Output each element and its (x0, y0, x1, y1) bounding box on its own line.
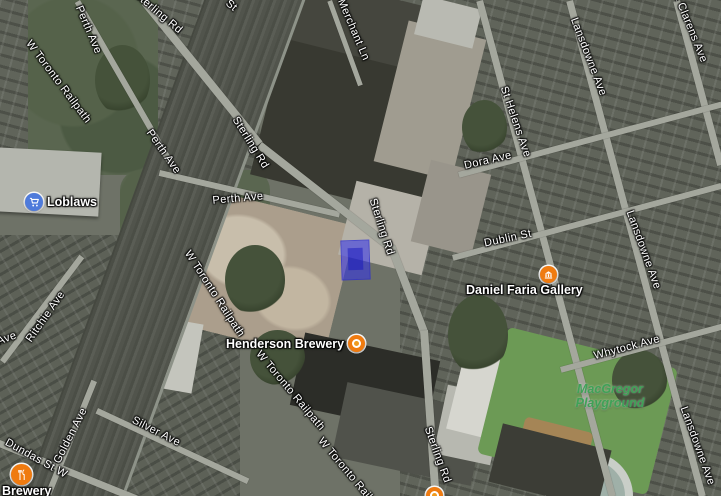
poi-macgregor-playground-line2: Playground (565, 396, 655, 410)
poi-loblaws[interactable]: Loblaws (25, 193, 97, 211)
art-gallery-icon (540, 266, 557, 283)
trees-blob-2 (225, 245, 285, 315)
highlighted-parcel[interactable] (341, 241, 369, 280)
poi-daniel-faria-gallery-label: Daniel Faria Gallery (466, 283, 583, 297)
poi-henderson-brewery-label: Henderson Brewery (226, 337, 344, 351)
poi-brewery-partial-label: Brewery (2, 484, 51, 496)
poi-daniel-faria-gallery[interactable]: Daniel Faria Gallery (466, 266, 572, 298)
trees-blob-5 (462, 100, 507, 155)
trees-blob-4 (448, 295, 508, 375)
parcel-building-shade (348, 248, 364, 271)
poi-dot-icon (348, 335, 365, 352)
shopping-cart-icon (25, 193, 43, 211)
restaurant-icon (11, 464, 32, 485)
poi-brewery-partial[interactable]: Brewery (2, 464, 62, 496)
poi-macgregor-playground[interactable]: MacGregor Playground (565, 382, 655, 410)
poi-macgregor-playground-line1: MacGregor (565, 382, 655, 396)
poi-henderson-brewery[interactable]: Henderson Brewery (226, 335, 365, 352)
poi-loblaws-label: Loblaws (47, 195, 97, 209)
satellite-map[interactable]: Perth Ave Sterling Rd W Toronto Railpath… (0, 0, 721, 496)
